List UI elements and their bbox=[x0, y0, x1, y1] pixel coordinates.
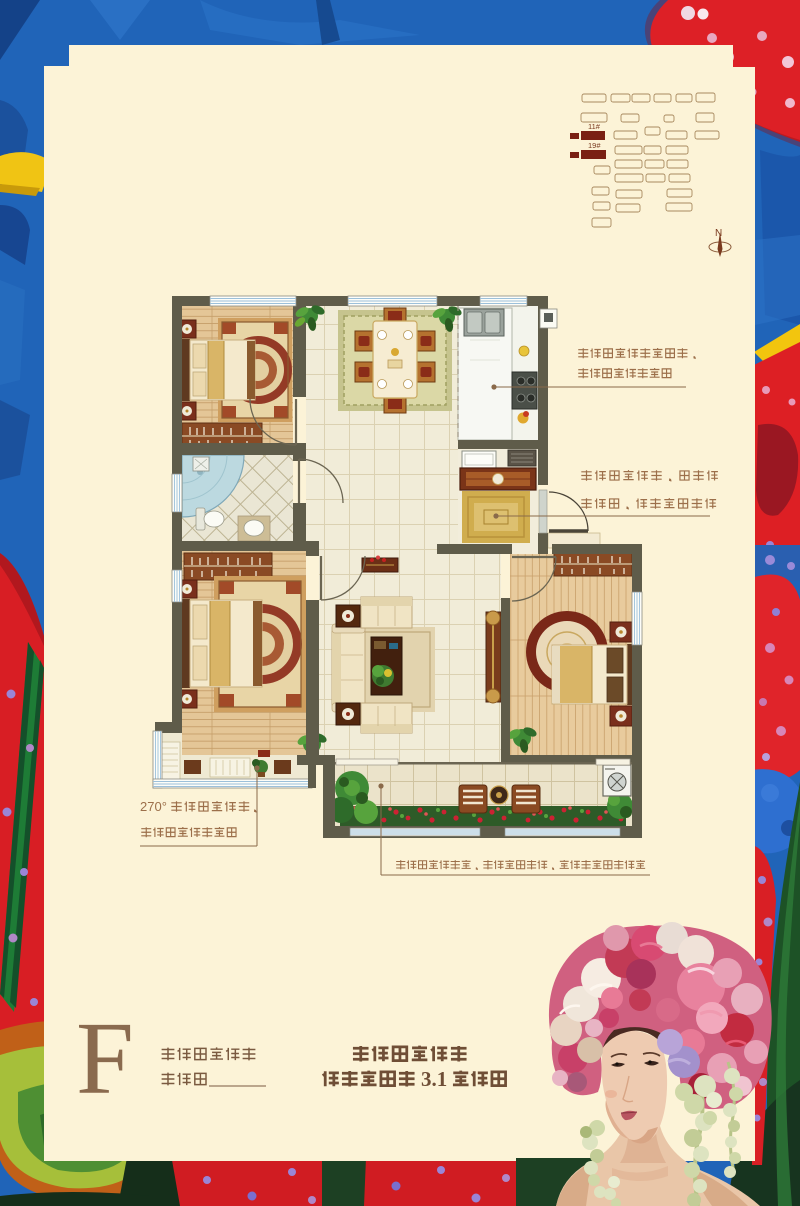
svg-text:N: N bbox=[715, 228, 722, 239]
svg-text:3.1: 3.1 bbox=[421, 1067, 447, 1091]
svg-text:19#: 19# bbox=[588, 141, 601, 150]
svg-text:F: F bbox=[76, 1001, 134, 1116]
svg-text:270°: 270° bbox=[140, 799, 167, 814]
svg-text:11#: 11# bbox=[588, 122, 601, 131]
